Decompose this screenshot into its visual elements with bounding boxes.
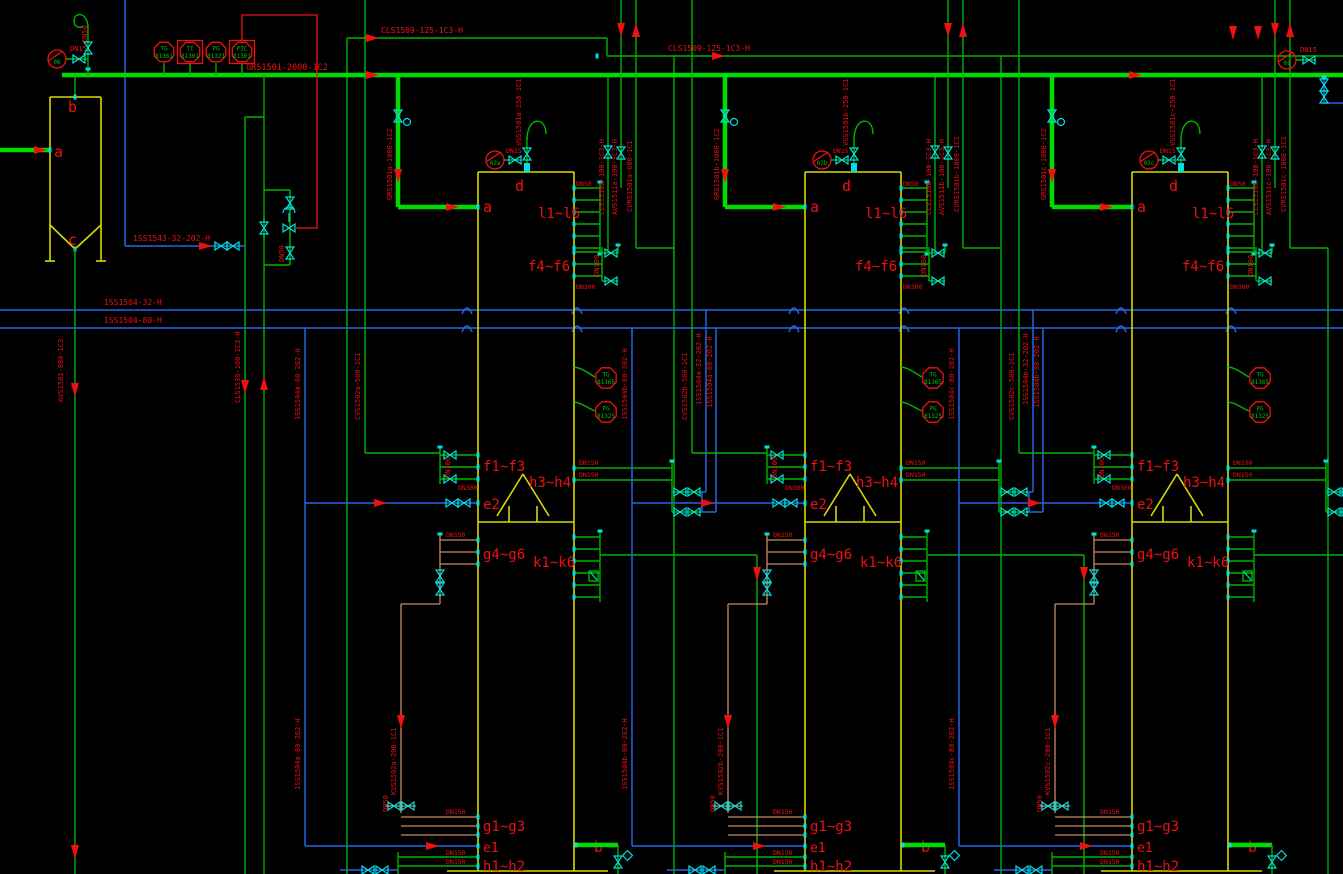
pipe-label: DN15 [1160,147,1176,155]
connection-tick [616,244,621,247]
nozzle-label: e1 [483,841,499,856]
connection-tick [1227,262,1230,267]
connection-tick [900,198,903,203]
connection-tick [1227,250,1230,255]
flow-arrow-down [1229,26,1237,40]
nozzle-label: g4~g6 [810,547,852,563]
pipe-label: DN150 [773,858,793,866]
connection-tick [573,571,576,576]
pipe-label-vertical: 1SS1504c-80-202-H [948,718,956,790]
nozzle-label: h3~h4 [1183,475,1225,491]
connection-tick [438,446,443,449]
connection-tick [804,205,807,210]
connection-tick [900,547,903,552]
connection-tick [1252,530,1257,533]
vessel-nozzle-label: b [68,98,77,116]
flow-arrow-down [944,23,952,37]
instrument-number: 81325 [1251,413,1269,420]
connection-tick [477,824,480,829]
pipe-label: DN150 [1100,849,1120,857]
connection-tick [997,460,1002,463]
pipe-label: DN150 [446,808,466,816]
instrument-signal-line [242,15,317,228]
instrument-tag: PG [1256,406,1264,413]
line-break-icon [789,326,799,332]
blue-header-label: 1SS1504-32-H [104,298,162,307]
pipe-label-vertical: DN100 [771,457,779,478]
pipe-label: DN15 [70,45,87,53]
connection-tick [573,583,576,588]
instrument-number: 02b [817,160,828,167]
connection-tick [1092,446,1097,449]
pipe-label: DN150 [446,858,466,866]
connection-tick [1131,477,1134,482]
spec-break-icon [524,163,530,172]
pipe-label-vertical: DN100 [444,457,452,478]
connection-tick [1227,466,1230,471]
actuator-icon [1058,119,1065,126]
connection-tick [438,533,443,536]
pipe-label-vertical: GRS1501a-1000-1C2 [386,128,394,200]
flow-arrow-right [426,842,439,850]
connection-tick [900,234,903,239]
pipe-label-vertical: 1SS1504a-80-202-H [294,348,302,420]
nozzle-label: f1~f3 [483,459,525,475]
nozzle-label: g1~g3 [810,819,852,835]
pipe-line [75,225,101,249]
pipe-label-vertical: 1SS1504b-80-202-H [621,718,629,790]
nozzle-label: e2 [483,497,500,513]
connection-tick [900,262,903,267]
flow-arrow-right [701,499,714,507]
nozzle-label: a [483,198,492,216]
pipe-label-vertical: CVRS1501c-1000-1C1 [1280,136,1288,212]
flow-arrow-right [1028,499,1041,507]
vessel-nozzle-label: a [54,143,63,161]
pipe-label-vertical: CVS1502c-500-1C1 [1008,353,1016,420]
nozzle-label: a [810,198,819,216]
pipe-label-vertical: 1SS1504b-32-202-H [1022,333,1030,405]
nozzle-label: g4~g6 [1137,547,1179,563]
connection-tick [1227,547,1230,552]
pipe-label: DN150 [579,471,599,479]
flow-arrow-right [1080,842,1093,850]
flow-arrow-up [260,376,268,390]
connection-tick [804,501,807,506]
connection-tick [804,855,807,860]
flow-arrow-right [1100,203,1113,211]
pipe-label: DN150 [1233,471,1253,479]
connection-tick [900,478,903,483]
connection-tick [477,562,480,567]
cls-header-label: CLS1509-125-1C3-H [668,44,750,53]
flow-arrow-down [1048,169,1056,183]
flow-arrow-right [374,499,387,507]
flow-arrow-down [1254,26,1262,40]
nozzle-label: l1~l6 [538,206,580,222]
connection-tick [1131,864,1134,869]
connection-tick [1227,198,1230,203]
flow-arrow-down [71,383,79,397]
pipe-label-vertical: CLS1510b-100-1C3-H [925,139,933,215]
connection-tick [575,843,578,848]
pipe-label: DN300 [785,484,805,492]
pipe-label: DN300 [1230,283,1250,291]
pipe-label-vertical: 1SS1504a-32-202-H [695,333,703,405]
flow-arrow-up [1286,23,1294,37]
pipe-label-vertical: AVS1501-800-1C3 [57,339,65,402]
pipe-line [824,474,850,516]
connection-tick [573,198,576,203]
nozzle-label: f4~f6 [855,259,897,275]
connection-tick [804,477,807,482]
connection-tick [1131,824,1134,829]
pipe-label-vertical: AVS1511a-100-1C3-H [611,139,619,215]
instrument-number: 81325 [597,413,615,420]
pipe-label: DN300 [576,283,596,291]
pipe-label: DN300 [903,283,923,291]
connection-tick [1131,550,1134,555]
connection-tick [1131,538,1134,543]
instrument-number: 81301 [181,53,199,60]
connection-tick [1131,833,1134,838]
flow-arrow-down [394,169,402,183]
pipe-label-vertical: DN100 [593,255,601,276]
pipe-label-vertical: DN50 [81,25,89,42]
connection-tick [477,465,480,470]
instrument-number: 02a [490,160,501,167]
instrument-tag: TG [929,372,937,379]
connection-tick [900,250,903,255]
pipe-label: DN150 [1233,459,1253,467]
pipe-line [497,474,523,516]
connection-tick [573,274,576,279]
connection-tick [1227,571,1230,576]
connection-tick [598,530,603,533]
connection-tick [1227,478,1230,483]
flow-arrow-down [1051,715,1059,729]
pipe-label: DN300 [458,484,478,492]
pipe-label: DN15 [1300,46,1317,54]
connection-tick [1324,460,1329,463]
connection-tick [86,68,91,71]
connection-tick [1270,244,1275,247]
connection-tick [804,844,807,849]
connection-tick [477,205,480,210]
vent-gooseneck-icon [1181,121,1200,140]
pipe-label: DN50 [1230,180,1246,188]
flow-arrow-up [959,23,967,37]
connection-tick [1131,453,1134,458]
flow-arrow-down [724,715,732,729]
nozzle-label: h1~h2 [810,859,852,874]
connection-tick [1227,234,1230,239]
pipe-label-vertical: VGS1501a-250-1C1 [515,79,523,146]
vessel-nozzle-label: c [68,231,77,249]
connection-tick [573,234,576,239]
pipe-label: DN50 [576,180,592,188]
pipe-label-vertical: GRS1501b-1000-1C2 [713,128,721,200]
pipe-label-vertical: 1SS1504a-80-202-H [294,718,302,790]
connection-tick [670,460,675,463]
pid-svg: GRS1501-2000-1C2CLS1509-125-1C3-HCLS1509… [0,0,1343,874]
nozzle-label: l1~l6 [865,206,907,222]
connection-tick [477,453,480,458]
pipe-label-vertical: KVS1502b-200-1C1 [717,728,725,795]
connection-tick [1131,855,1134,860]
pipe-label: DN150 [773,849,793,857]
flow-arrow-up [632,23,640,37]
line-break-icon [789,308,799,314]
connection-tick [573,535,576,540]
connection-tick [804,453,807,458]
pipe-label-vertical: DN100 [1247,255,1255,276]
connection-tick [1229,843,1232,848]
connection-tick [477,550,480,555]
instrument-tag: PG [212,46,220,53]
connection-tick [804,833,807,838]
instrument-number: 06 [53,59,61,66]
pipe-label-vertical: 1SS1504c-80-202-H [948,348,956,420]
pipe-line [1151,474,1177,516]
instrument-number: 81301 [233,53,251,60]
connection-tick [804,864,807,869]
nozzle-label: h3~h4 [856,475,898,491]
pipe-label-vertical: CVRS1501b-1000-1C1 [953,136,961,212]
flow-arrow-right [366,71,379,79]
connection-tick [477,844,480,849]
instrument-lead [574,367,595,377]
pipe-label: DN300 [1112,484,1132,492]
pipe-label: DN150 [1100,531,1120,539]
instrument-number: 02c [1144,160,1155,167]
connection-tick [1131,501,1134,506]
pipe-label-vertical: VGS1501b-250-1C1 [842,79,850,146]
connection-tick [900,466,903,471]
spec-break-icon [851,163,857,172]
flow-arrow-down [241,380,249,394]
blue-branch-label: 1SS1543-32-202-H [133,234,210,243]
nozzle-label: g4~g6 [483,547,525,563]
connection-tick [1131,465,1134,470]
nozzle-label: k1~k6 [533,555,575,571]
instrument-lead [1228,367,1249,377]
connection-tick [1227,222,1230,227]
nozzle-label: f1~f3 [1137,459,1179,475]
flow-arrow-right [446,203,459,211]
instrument-lead [1228,402,1249,411]
pipe-label: DN150 [773,531,793,539]
connection-tick [477,538,480,543]
flow-arrow-right [34,146,47,154]
connection-tick [804,562,807,567]
instrument-number: 81325 [924,413,942,420]
connection-tick [804,538,807,543]
nozzle-label: h1~h2 [1137,859,1179,874]
pipe-label-vertical: DN100 [920,255,928,276]
connection-tick [49,148,52,153]
nozzle-label: a [1137,198,1146,216]
connection-tick [477,815,480,820]
instrument-number: 81365 [924,379,942,386]
connection-tick [765,533,770,536]
connection-tick [74,95,77,100]
pipe-label-vertical: DN50 [278,245,286,262]
connection-tick [573,222,576,227]
flow-arrow-down [721,169,729,183]
pipe-label: DN150 [773,808,793,816]
nozzle-label: k1~k6 [1187,555,1229,571]
connection-tick [477,833,480,838]
instrument-number: 81365 [1251,379,1269,386]
connection-tick [1227,274,1230,279]
spec-break-icon [1178,163,1184,172]
pipe-label-vertical: AVS1511b-100-1C3-H [938,139,946,215]
valve-handle-icon [1277,851,1287,861]
connection-tick [900,583,903,588]
pipe-label-vertical: KVS1502c-200-1C1 [1044,728,1052,795]
flow-arrow-right [712,52,725,60]
flow-arrow-right [773,203,786,211]
nozzle-label: f4~f6 [1182,259,1224,275]
flow-arrow-down [397,715,405,729]
instrument-lead [901,402,922,411]
connection-tick [925,530,930,533]
connection-tick [1131,844,1134,849]
pipe-label: DN150 [579,459,599,467]
connection-tick [804,550,807,555]
instrument-lead [574,402,595,411]
main-header-label: GRS1501-2000-1C2 [246,63,328,73]
cls-header-label: CLS1509-125-1C3-H [381,26,463,35]
pipe-label: DN150 [1100,858,1120,866]
actuator-icon [404,119,411,126]
pipe-label: DN150 [446,849,466,857]
pipe-label-vertical: GRS1501c-1000-1C2 [1040,128,1048,200]
connection-tick [900,535,903,540]
line-break-icon [462,308,472,314]
instrument-tag: PIC [237,46,248,53]
connection-tick [573,595,576,600]
pipe-label-vertical: 1SS1504b-80-202-H [621,348,629,420]
connection-tick [596,54,599,59]
connection-tick [1322,76,1327,79]
connection-tick [1227,535,1230,540]
nozzle-label: h1~h2 [483,859,525,874]
blue-header-label: 1SS1504-80-H [104,316,162,325]
connection-tick [900,222,903,227]
connection-tick [900,571,903,576]
pipe-label: DN150 [906,459,926,467]
pipe-label: DN150 [446,531,466,539]
pipe-label-vertical: KVS1502a-200-1C1 [390,728,398,795]
pipe-label: DN150 [906,471,926,479]
flow-arrow-down [753,567,761,581]
connection-tick [804,824,807,829]
instrument-tag: TG [602,372,610,379]
pipe-label-vertical: CLS1539-100-1C3-H [234,331,242,403]
pid-drawing-canvas[interactable]: GRS1501-2000-1C2CLS1509-125-1C3-HCLS1509… [0,0,1343,874]
flow-arrow-right [753,842,766,850]
flow-arrow-right [1129,71,1142,79]
pipe-label-vertical: DN100 [1098,457,1106,478]
valve-handle-icon [623,851,633,861]
connection-tick [902,843,905,848]
instrument-tag: TG [160,46,168,53]
instrument-tag: PG [929,406,937,413]
pipe-label-vertical: 1SS1504b-80-202-H [1033,336,1041,408]
connection-tick [1131,205,1134,210]
connection-tick [1227,583,1230,588]
valve-icon [283,224,295,232]
connection-tick [1131,562,1134,567]
connection-tick [765,446,770,449]
line-break-icon [1116,308,1126,314]
pipe-label: DN15 [506,147,522,155]
flow-arrow-down [1080,567,1088,581]
pipe-label-vertical: CLS1510c-100-1C3-H [1252,139,1260,215]
connection-tick [1092,533,1097,536]
nozzle-label: d [842,177,851,195]
pipe-label-vertical: VGS1501c-250-1C1 [1169,79,1177,146]
nozzle-label: h3~h4 [529,475,571,491]
pipe-label-vertical: AVS1511c-100-1C3-H [1265,139,1273,215]
instrument-number: 81321 [207,53,225,60]
pipe-label: DN15 [833,147,849,155]
connection-tick [573,478,576,483]
nozzle-label: d [515,177,524,195]
connection-tick [573,466,576,471]
pipe-label-vertical: 1SS1504a-80-202-H [706,336,714,408]
nozzle-label: k1~k6 [860,555,902,571]
connection-tick [900,595,903,600]
instrument-number: 81361 [155,53,173,60]
nozzle-label: d [1169,177,1178,195]
pipe-label-vertical: CVRS1501a-600-1C1 [626,140,634,212]
connection-tick [804,465,807,470]
nozzle-label: l1~l6 [1192,206,1234,222]
nozzle-label: g1~g3 [1137,819,1179,835]
instrument-number: 81365 [597,379,615,386]
pipe-label: DN50 [903,180,919,188]
vent-gooseneck-icon [854,121,873,140]
nozzle-label: e1 [1137,841,1153,856]
connection-tick [900,274,903,279]
flow-arrow-down [71,845,79,859]
instrument-tag: PG [602,406,610,413]
flow-arrow-down [1271,23,1279,37]
connection-tick [1131,815,1134,820]
pipe-label-vertical: CVS1502a-500-1C1 [354,353,362,420]
connection-tick [943,244,948,247]
nozzle-label: e2 [810,497,827,513]
flow-arrow-right [366,34,379,42]
connection-tick [477,501,480,506]
instrument-number: 01 [1283,60,1291,67]
nozzle-label: f4~f6 [528,259,570,275]
nozzle-label: f1~f3 [810,459,852,475]
connection-tick [573,250,576,255]
instrument-tag: TI [186,46,194,53]
nozzle-label: g1~g3 [483,819,525,835]
nozzle-label: e1 [810,841,826,856]
instrument-lead [901,367,922,377]
line-break-icon [1116,326,1126,332]
actuator-icon [731,119,738,126]
vent-gooseneck-icon [527,121,546,140]
connection-tick [477,477,480,482]
nozzle-label: e2 [1137,497,1154,513]
